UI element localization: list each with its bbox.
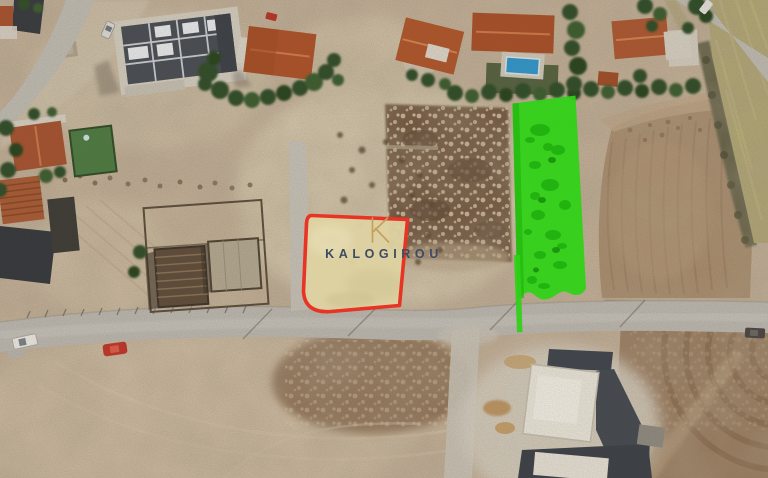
aerial-map: KALOGIROU <box>0 0 768 478</box>
company-label: KALOGIROU <box>325 247 443 261</box>
aerial-map-stage: KALOGIROU <box>0 0 768 478</box>
green-strip-plot <box>513 96 587 300</box>
